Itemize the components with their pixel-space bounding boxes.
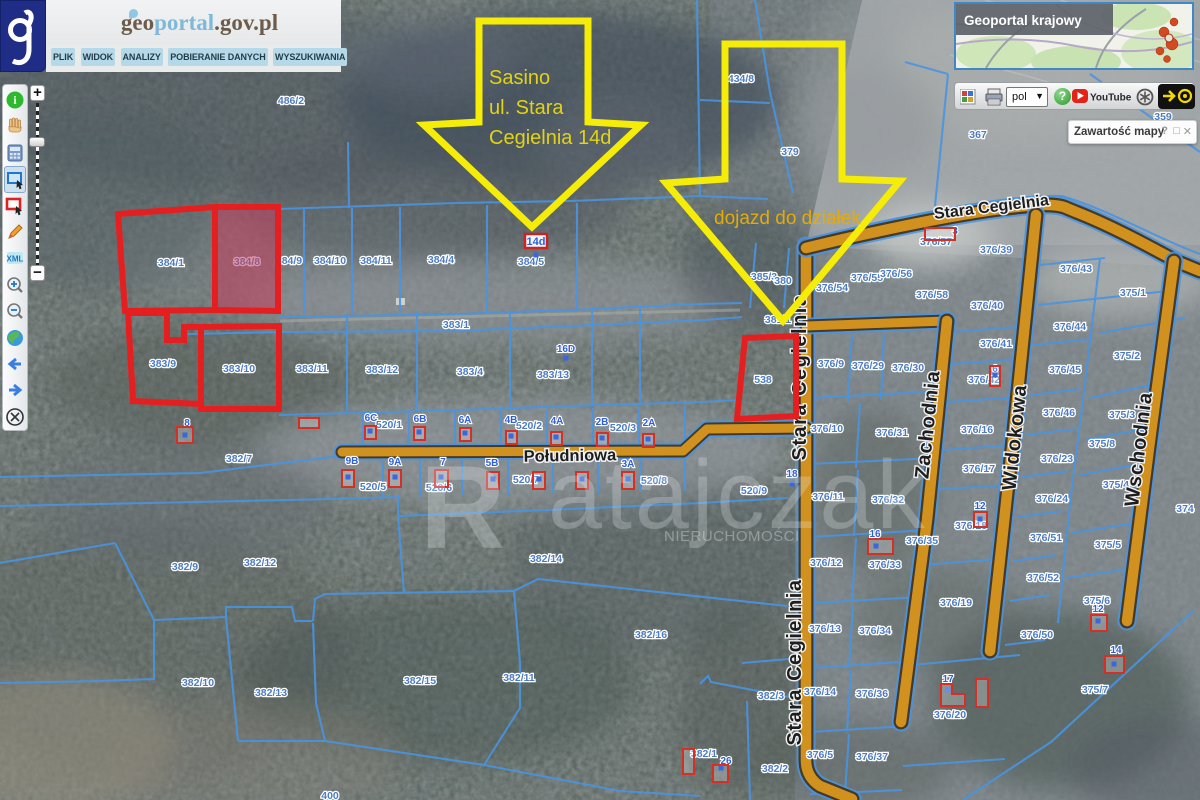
svg-text:376/14: 376/14 xyxy=(804,686,836,698)
svg-text:14: 14 xyxy=(1110,645,1122,656)
svg-text:376/37: 376/37 xyxy=(856,751,888,763)
svg-text:367: 367 xyxy=(969,129,987,141)
svg-text:383/9: 383/9 xyxy=(150,358,176,370)
svg-text:376/24: 376/24 xyxy=(1036,493,1068,505)
svg-text:376/17: 376/17 xyxy=(963,463,995,475)
svg-text:6A: 6A xyxy=(459,415,472,426)
svg-text:400: 400 xyxy=(321,790,339,800)
svg-text:374: 374 xyxy=(1176,503,1194,515)
svg-text:434/8: 434/8 xyxy=(728,73,754,85)
svg-text:376/39: 376/39 xyxy=(980,244,1012,256)
svg-text:382/7: 382/7 xyxy=(226,453,252,465)
svg-text:6C: 6C xyxy=(365,413,378,424)
svg-text:382/16: 382/16 xyxy=(635,629,667,641)
svg-text:376/12: 376/12 xyxy=(810,557,842,569)
svg-text:376/20: 376/20 xyxy=(934,709,966,721)
svg-text:12: 12 xyxy=(1092,604,1104,615)
svg-text:375/2: 375/2 xyxy=(1114,350,1140,362)
svg-text:376/56: 376/56 xyxy=(880,268,912,280)
svg-text:6B: 6B xyxy=(414,414,427,425)
svg-text:Cegielnia 14d: Cegielnia 14d xyxy=(489,127,611,149)
svg-text:376/19: 376/19 xyxy=(940,597,972,609)
svg-text:538: 538 xyxy=(754,374,772,386)
svg-text:382/3: 382/3 xyxy=(758,690,784,702)
svg-text:384/5: 384/5 xyxy=(518,256,544,268)
svg-text:376/33: 376/33 xyxy=(869,559,901,571)
svg-text:Sasino: Sasino xyxy=(489,67,550,89)
svg-text:520/2: 520/2 xyxy=(516,420,542,432)
svg-text:376/29: 376/29 xyxy=(852,360,884,372)
svg-text:520/1: 520/1 xyxy=(376,419,402,431)
svg-text:383/12: 383/12 xyxy=(366,364,398,376)
svg-text:383/4: 383/4 xyxy=(457,366,483,378)
svg-text:376/40: 376/40 xyxy=(971,300,1003,312)
svg-text:382/11: 382/11 xyxy=(503,672,535,684)
svg-text:4B: 4B xyxy=(505,415,518,426)
svg-text:376/16: 376/16 xyxy=(961,424,993,436)
svg-text:376/45: 376/45 xyxy=(1049,364,1081,376)
svg-text:376/52: 376/52 xyxy=(1027,572,1059,584)
svg-text:375/1: 375/1 xyxy=(1120,287,1146,299)
svg-text:14d: 14d xyxy=(527,236,546,248)
svg-text:384/10: 384/10 xyxy=(314,255,346,267)
svg-text:376/43: 376/43 xyxy=(1060,263,1092,275)
svg-text:382/15: 382/15 xyxy=(404,675,436,687)
svg-text:376/36: 376/36 xyxy=(856,688,888,700)
svg-text:382/10: 382/10 xyxy=(182,677,214,689)
svg-text:384/11: 384/11 xyxy=(360,255,392,267)
svg-text:379: 379 xyxy=(781,146,799,158)
svg-text:376/44: 376/44 xyxy=(1054,321,1086,333)
svg-text:dojazd do działek: dojazd do działek xyxy=(714,208,861,229)
svg-text:376/5: 376/5 xyxy=(807,749,833,761)
svg-text:384/1: 384/1 xyxy=(158,257,184,269)
svg-text:376/31: 376/31 xyxy=(876,427,908,439)
svg-text:376/13: 376/13 xyxy=(809,623,841,635)
svg-text:16D: 16D xyxy=(557,344,575,355)
svg-text:4A: 4A xyxy=(551,416,564,427)
svg-text:520/3: 520/3 xyxy=(610,422,636,434)
svg-text:382/9: 382/9 xyxy=(172,561,198,573)
svg-text:376/51: 376/51 xyxy=(1030,532,1062,544)
svg-text:376/55: 376/55 xyxy=(851,272,883,284)
svg-text:2A: 2A xyxy=(643,418,656,429)
svg-text:376/58: 376/58 xyxy=(916,289,948,301)
svg-text:383/13: 383/13 xyxy=(537,369,569,381)
svg-text:376/10: 376/10 xyxy=(811,423,843,435)
svg-text:2B: 2B xyxy=(596,417,609,428)
svg-text:YouTube: YouTube xyxy=(1090,93,1132,104)
svg-text:375/7: 375/7 xyxy=(1082,684,1108,696)
svg-text:9A: 9A xyxy=(389,457,402,468)
svg-text:ul. Stara: ul. Stara xyxy=(489,97,564,119)
svg-text:520/5: 520/5 xyxy=(360,481,386,493)
svg-text:376/34: 376/34 xyxy=(859,625,891,637)
svg-text:384/4: 384/4 xyxy=(428,254,454,266)
svg-text:382/12: 382/12 xyxy=(244,557,276,569)
svg-text:376/50: 376/50 xyxy=(1021,629,1053,641)
svg-text:383/10: 383/10 xyxy=(223,363,255,375)
svg-text:XML: XML xyxy=(7,255,24,264)
svg-text:382/2: 382/2 xyxy=(762,763,788,775)
svg-text:375/5: 375/5 xyxy=(1095,539,1121,551)
svg-text:375/8: 375/8 xyxy=(1089,438,1115,450)
svg-text:376/30: 376/30 xyxy=(892,362,924,374)
svg-text:12: 12 xyxy=(974,501,986,512)
svg-text:376/41: 376/41 xyxy=(980,338,1012,350)
svg-text:R: R xyxy=(420,442,505,574)
svg-text:382/13: 382/13 xyxy=(255,687,287,699)
svg-text:NIERUCHOMOŚCI: NIERUCHOMOŚCI xyxy=(664,527,800,545)
svg-text:9B: 9B xyxy=(346,456,359,467)
svg-text:Geoportal krajowy: Geoportal krajowy xyxy=(964,13,1082,28)
svg-text:380: 380 xyxy=(774,275,792,287)
svg-text:376/46: 376/46 xyxy=(1043,407,1075,419)
svg-text:376/23: 376/23 xyxy=(1041,453,1073,465)
svg-text:486/2: 486/2 xyxy=(278,95,304,107)
svg-text:383/1: 383/1 xyxy=(443,319,469,331)
svg-text:376/54: 376/54 xyxy=(816,282,848,294)
svg-text:382/14: 382/14 xyxy=(530,553,562,565)
svg-text:Stara Cegielnia: Stara Cegielnia xyxy=(789,293,811,460)
svg-text:Stara Cegielnia: Stara Cegielnia xyxy=(784,578,806,745)
svg-text:383/11: 383/11 xyxy=(296,363,328,375)
svg-text:376/9: 376/9 xyxy=(818,358,844,370)
